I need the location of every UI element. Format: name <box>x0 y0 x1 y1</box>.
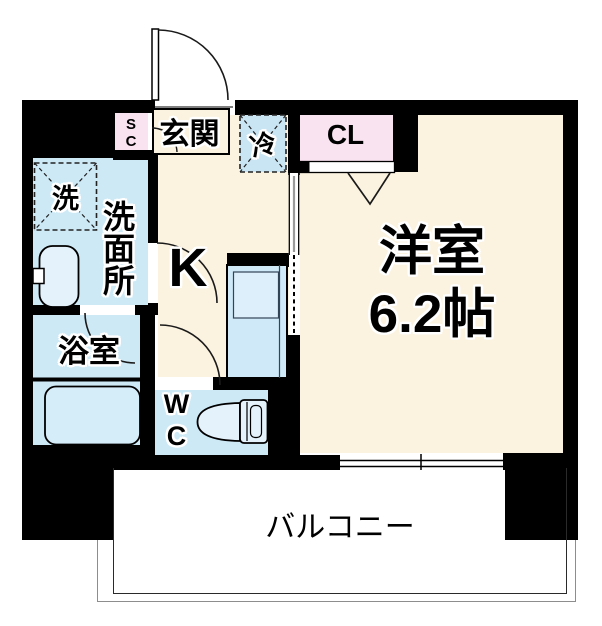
wall-right <box>563 100 578 453</box>
wall-divider-top <box>288 100 300 175</box>
balcony-fence-outer <box>97 540 576 602</box>
divider-slider-bg <box>289 173 300 255</box>
wall-washroom-right-upper <box>148 152 158 243</box>
wall-bath-right <box>140 315 155 455</box>
accordion-bg <box>289 255 299 335</box>
wall-under-bath-patch <box>113 445 143 458</box>
wall-closet-stub <box>393 100 418 172</box>
wall-wc-right <box>268 390 300 455</box>
wall-bath-top-a <box>33 305 80 315</box>
wall-bath-top-b <box>135 305 157 315</box>
western-room-floor <box>300 115 563 453</box>
wc-floor <box>155 388 268 455</box>
shoe-closet-box <box>115 113 148 152</box>
sliding-window-gap <box>340 453 503 470</box>
wall-wc-top <box>213 377 300 390</box>
wall-bottom-left-block <box>22 445 113 540</box>
washroom-floor <box>33 158 148 305</box>
entry-door-leaf <box>152 29 159 100</box>
genkan-box <box>152 108 230 155</box>
wall-top-left-block <box>22 100 115 158</box>
floor-plan: SC 玄関 冷 CL 洗 洗面所 K 浴室 WC 洋室 6.2帖 バルコニー <box>0 0 602 626</box>
wall-divider-bottom <box>288 335 300 390</box>
wall-counter-top-bar <box>227 253 289 267</box>
bathroom-floor <box>33 315 140 445</box>
closet-box <box>298 110 393 162</box>
wall-left <box>22 158 33 465</box>
wall-top-a <box>113 100 155 113</box>
wc-threshold <box>155 377 213 390</box>
entry-door-arc <box>159 30 229 100</box>
